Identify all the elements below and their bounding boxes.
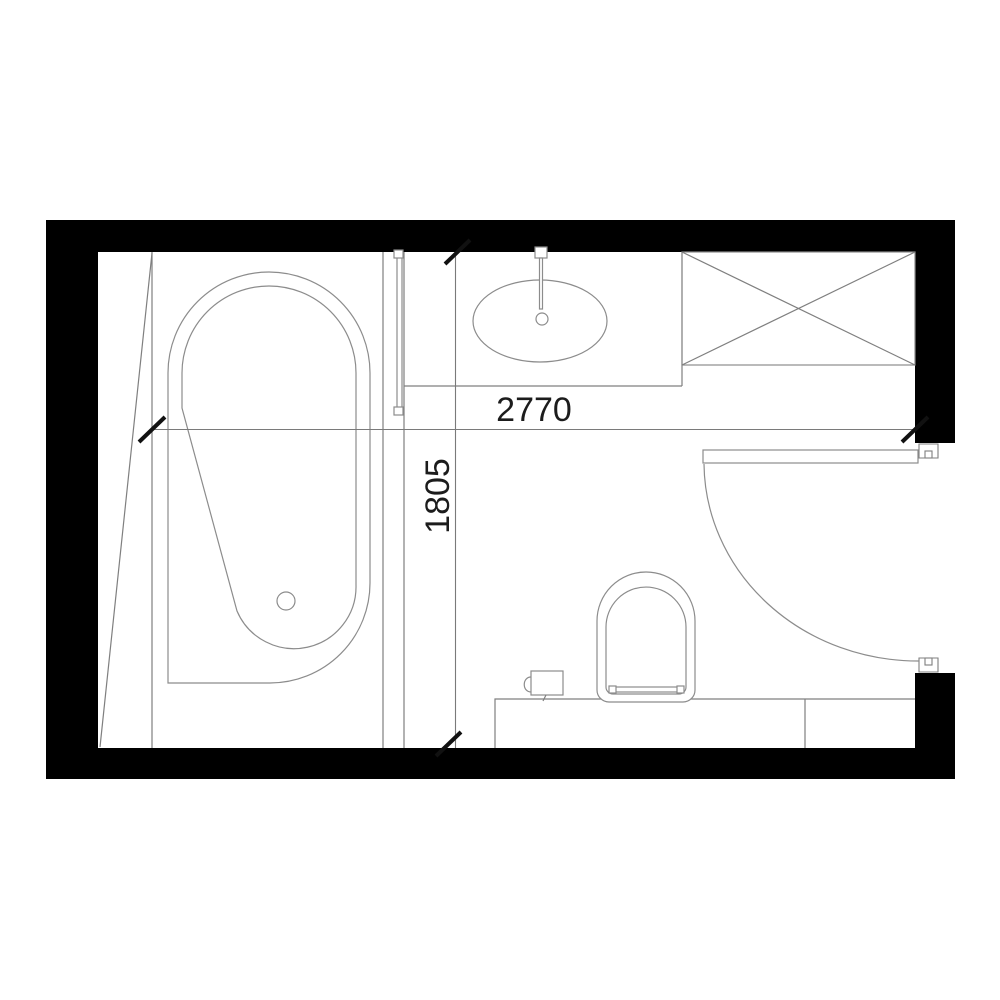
shower-screen <box>394 250 403 415</box>
toilet-paper-holder <box>524 671 563 701</box>
paper-holder-body <box>531 671 563 695</box>
faucet-base <box>535 247 547 258</box>
door-stop-bottom <box>925 658 932 665</box>
vanity-area <box>404 247 915 386</box>
bathtub-outer-rim <box>168 272 370 683</box>
door <box>703 444 938 672</box>
screen-bottom-fitting <box>394 407 403 415</box>
bathroom-floor-plan: 2770 1805 <box>0 0 1000 1000</box>
toilet-hinge-right <box>677 686 684 693</box>
cistern-ledge <box>495 699 915 748</box>
wall-right-upper <box>915 220 955 443</box>
dimension-label-width: 2770 <box>496 391 572 429</box>
wall-bottom <box>46 748 955 779</box>
toilet-hinge-left <box>609 686 616 693</box>
door-stop-top <box>925 451 932 458</box>
wall-top <box>46 220 955 252</box>
dimension-height: 1805 <box>419 240 470 756</box>
paper-holder-bracket <box>524 677 531 692</box>
faucet-spout <box>540 258 543 309</box>
wall-right-lower <box>915 673 955 779</box>
floor-plan-canvas: 2770 1805 <box>0 0 1000 1000</box>
storage-cabinet <box>682 252 915 365</box>
door-leaf <box>703 450 918 463</box>
paper-holder-mount <box>543 695 546 701</box>
toilet-outer-rim <box>597 572 695 702</box>
dimension-label-height: 1805 <box>419 458 457 534</box>
washbasin <box>473 247 607 362</box>
basin-drain-icon <box>536 313 548 325</box>
sloped-wall-line <box>100 253 152 747</box>
ledge-edge <box>495 699 915 748</box>
screen-top-fitting <box>394 250 403 258</box>
wall-left <box>46 220 98 779</box>
toilet <box>597 572 695 702</box>
bathtub <box>168 272 370 683</box>
shower-glass-panel <box>397 253 402 413</box>
door-swing-arc <box>704 464 919 661</box>
